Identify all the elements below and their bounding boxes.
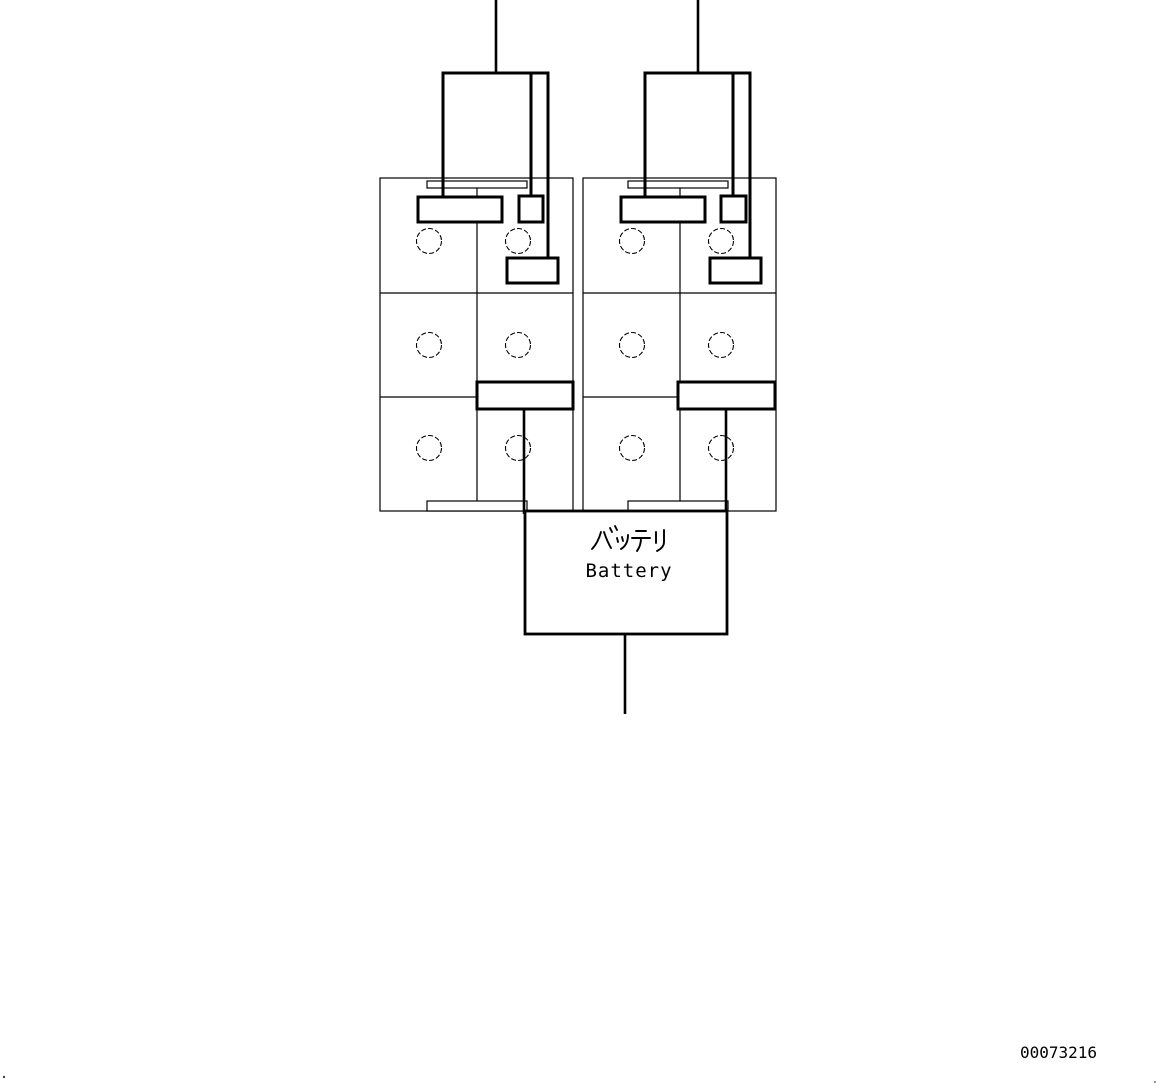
battery-case-grid xyxy=(380,178,573,511)
battery-label-box: Battery xyxy=(525,511,727,714)
terminal-connector xyxy=(418,197,502,222)
part-number: 00073216 xyxy=(1020,1043,1097,1062)
inter-cell-connector xyxy=(477,382,573,409)
bottom-foot xyxy=(628,501,728,511)
battery-unit-left xyxy=(380,0,573,514)
terminal-clamp xyxy=(710,258,761,283)
speck-bottom-right xyxy=(1154,1081,1156,1083)
battery-case-grid xyxy=(583,178,776,511)
terminal-post xyxy=(519,196,543,222)
speck-bottom-left xyxy=(3,1076,5,1078)
top-ledge xyxy=(628,181,728,188)
label-text-english: Battery xyxy=(585,560,672,582)
terminal-post xyxy=(721,196,746,222)
inter-cell-connector xyxy=(678,382,775,409)
battery-wiring-diagram: Battery 00073216 xyxy=(0,0,1163,1089)
bottom-foot xyxy=(427,501,527,511)
terminal-clamp xyxy=(507,258,558,283)
terminal-connector xyxy=(621,197,705,222)
battery-unit-right xyxy=(583,0,776,514)
battery-wiring-diagram-page: Battery 00073216 xyxy=(0,0,1163,1089)
